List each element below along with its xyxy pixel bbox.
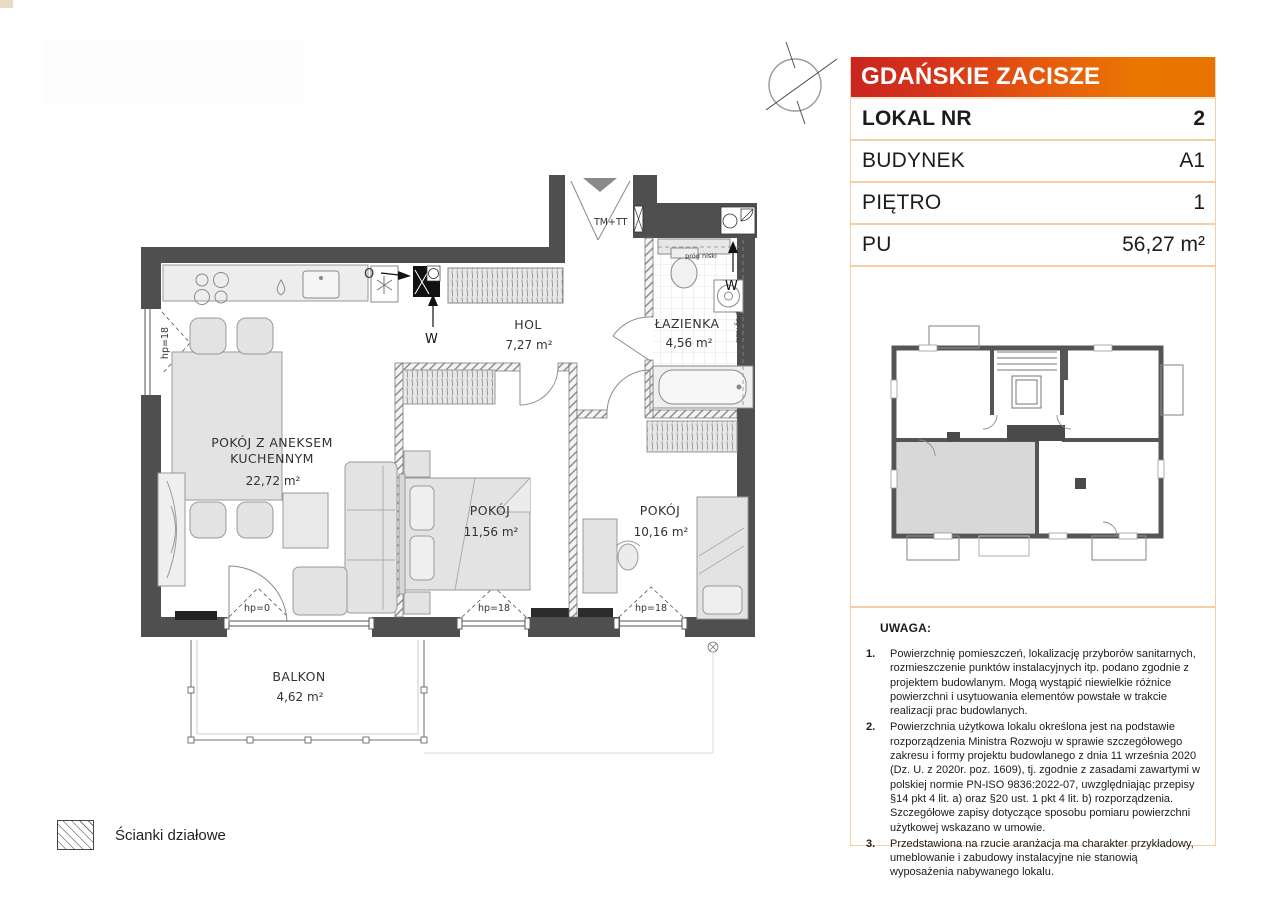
row-pu: PU 56,27 m² xyxy=(851,225,1215,267)
logo-area xyxy=(42,40,304,103)
kitchen-counter xyxy=(163,265,440,305)
partition-hatch-swatch xyxy=(57,820,94,850)
note-item: 1. Powierzchnię pomieszczeń, lokalizację… xyxy=(866,647,1201,718)
entrance-label: TM+TT xyxy=(593,217,628,228)
keyplan-area xyxy=(851,267,1215,606)
row-pietro: PIĘTRO 1 xyxy=(851,183,1215,225)
survey-mark xyxy=(424,642,718,753)
floorplan-sheet: TM+TT O xyxy=(0,0,1273,900)
living-furniture xyxy=(158,318,397,620)
room-bed1-area: 11,56 m² xyxy=(464,525,519,539)
room-balcony-name: BALKON xyxy=(272,669,325,684)
notes-heading: UWAGA: xyxy=(880,621,1201,635)
note-item: 2. Powierzchnia użytkowa lokalu określon… xyxy=(866,720,1201,834)
floor-plan: TM+TT O xyxy=(130,165,790,765)
svg-text:W: W xyxy=(425,332,438,347)
room-bath-name: ŁAZIENKA xyxy=(654,316,720,331)
highlighted-unit xyxy=(897,440,1037,533)
water-mark-kitchen: W xyxy=(425,294,438,347)
room-living-name2: KUCHENNYM xyxy=(230,451,314,466)
bedroom1-furniture xyxy=(399,370,530,614)
compass-icon xyxy=(748,28,840,124)
sill-hp18-b: hp=18 xyxy=(635,603,667,614)
svg-text:O: O xyxy=(364,267,374,282)
legend: Ścianki działowe xyxy=(57,820,226,850)
room-balcony-area: 4,62 m² xyxy=(276,690,323,704)
room-living-name1: POKÓJ Z ANEKSEM xyxy=(211,435,333,450)
building-keyplan xyxy=(879,320,1189,565)
room-living-area: 22,72 m² xyxy=(246,474,301,488)
room-bed2-area: 10,16 m² xyxy=(634,525,689,539)
hall-wardrobe xyxy=(448,268,563,303)
room-hall-area: 7,27 m² xyxy=(505,338,552,352)
bedroom2-furniture xyxy=(583,421,748,619)
threshold-top: próg niski xyxy=(685,252,717,260)
info-panel: GDAŃSKIE ZACISZE LOKAL NR 2 BUDYNEK A1 P… xyxy=(850,57,1216,846)
notes-list: 1. Powierzchnię pomieszczeń, lokalizację… xyxy=(866,647,1201,880)
svg-text:W: W xyxy=(725,279,738,294)
project-title: GDAŃSKIE ZACISZE xyxy=(861,63,1100,91)
room-bath-area: 4,56 m² xyxy=(665,336,712,350)
note-item: 3. Przedstawiona na rzucie aranżacja ma … xyxy=(866,837,1201,880)
threshold-side: próg niski xyxy=(734,311,742,343)
sill-hp18-left: hp=18 xyxy=(160,327,171,359)
row-lokal: LOKAL NR 2 xyxy=(851,97,1215,141)
project-header: GDAŃSKIE ZACISZE xyxy=(851,57,1215,97)
sill-hp0: hp=0 xyxy=(244,603,270,614)
corner-mark xyxy=(0,0,13,8)
room-bed1-name: POKÓJ xyxy=(470,503,510,518)
sill-hp18-a: hp=18 xyxy=(478,603,510,614)
notes-box: UWAGA: 1. Powierzchnię pomieszczeń, loka… xyxy=(851,606,1215,845)
legend-label: Ścianki działowe xyxy=(115,827,226,844)
room-hall-name: HOL xyxy=(514,317,541,332)
entrance-door xyxy=(571,178,643,240)
room-bed2-name: POKÓJ xyxy=(640,503,680,518)
row-budynek: BUDYNEK A1 xyxy=(851,141,1215,183)
